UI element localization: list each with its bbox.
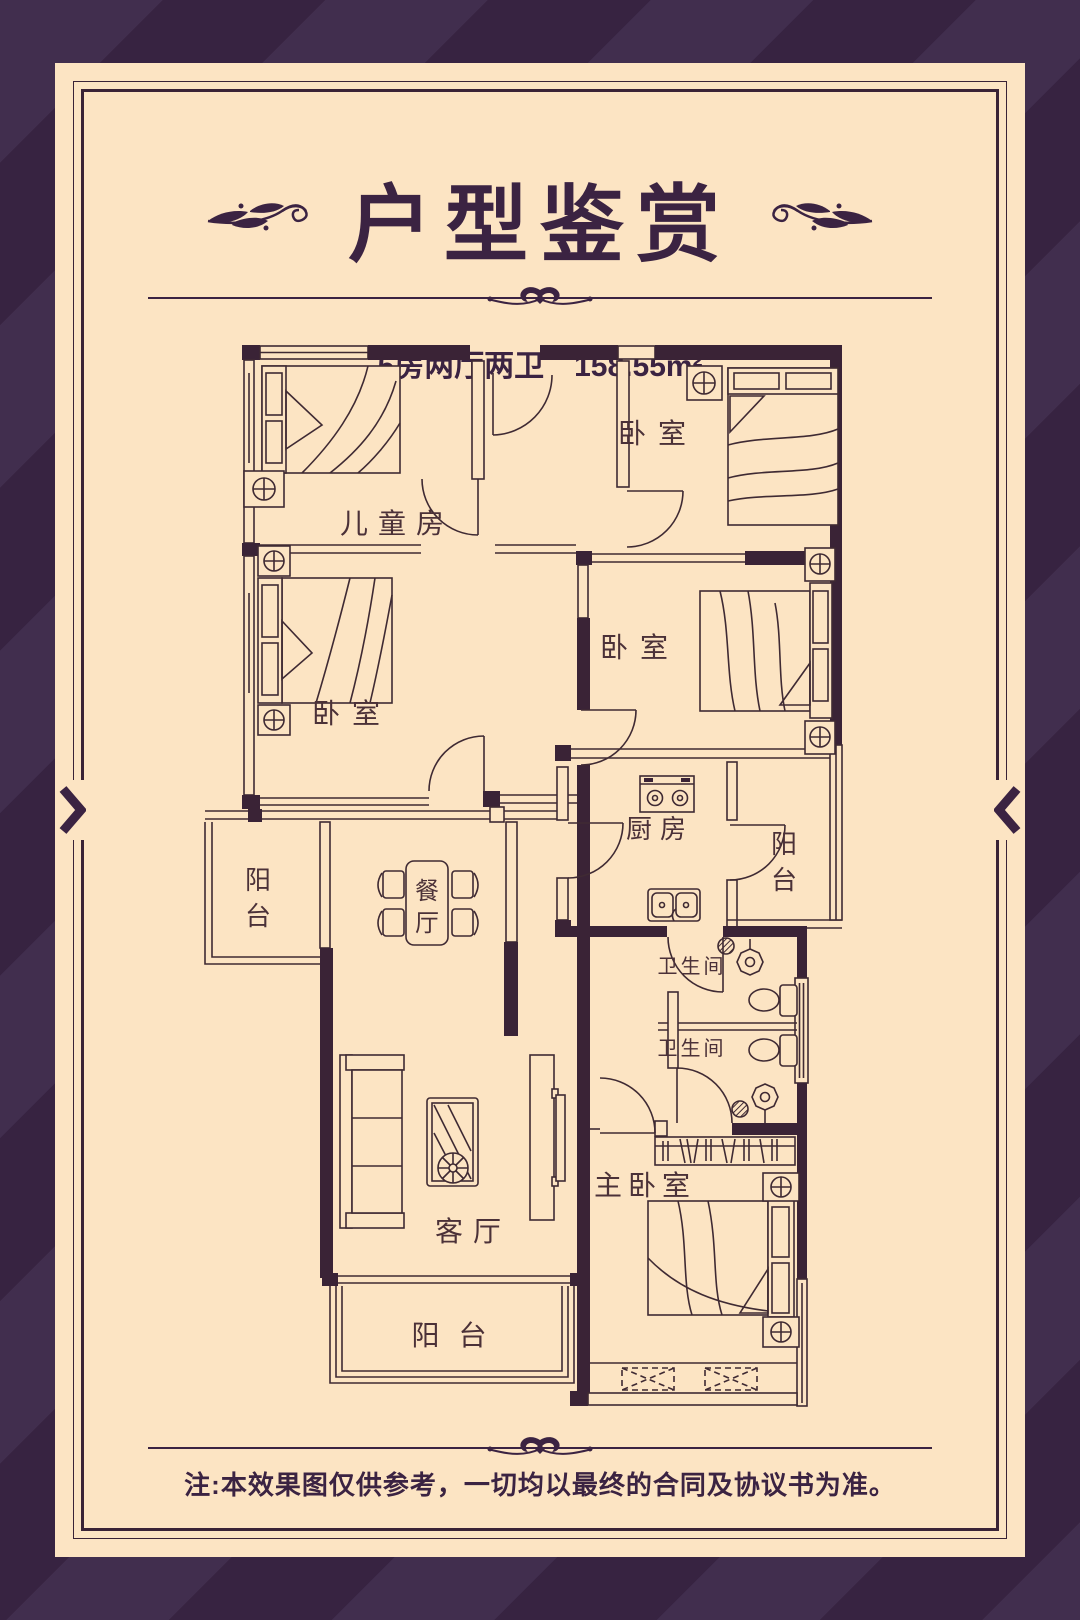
bathroom-2-toilet — [749, 1035, 797, 1066]
living-room-label: 客厅 — [435, 1216, 511, 1248]
svg-text:阳: 阳 — [245, 866, 271, 895]
living-coffee-table — [427, 1098, 478, 1186]
svg-text:台: 台 — [771, 866, 797, 895]
balcony-bottom-label: 阳 台 — [411, 1320, 492, 1352]
entry-door — [493, 373, 552, 435]
kitchen-sink — [648, 889, 700, 921]
flourish-left-icon — [204, 195, 314, 241]
living-tv-cabinet — [530, 1055, 565, 1220]
kitchen-stove — [640, 776, 694, 812]
bedroom-mid-left-label: 卧室 — [312, 698, 392, 730]
kitchen-label: 厨房 — [626, 815, 694, 844]
poster-background: 户型鉴赏 5房两厅两卫 158.55m² — [0, 0, 1080, 1620]
kitchen-door — [568, 823, 623, 878]
bathroom-2-door — [677, 1068, 732, 1123]
bathroom-1-shower — [737, 939, 763, 975]
bedroom-mid-left-nightstand-top — [258, 546, 290, 576]
master-nightstand-bottom — [763, 1317, 799, 1347]
bathroom-1-toilet — [749, 985, 797, 1016]
master-bedroom-label: 主卧室 — [594, 1170, 696, 1202]
living-sofa — [340, 1055, 404, 1228]
children-room-nightstand — [244, 471, 284, 507]
master-cabinet-boxes — [622, 1368, 757, 1390]
floor-plan: 儿童房 卧室 卧室 卧室 厨房 卫生间 卫生间 客厅 主卧室 餐 厅 阳 台 阳… — [200, 333, 850, 1408]
balcony-kitchen-label: 阳 台 — [771, 830, 797, 895]
divider-top — [148, 297, 932, 299]
svg-text:台: 台 — [245, 902, 271, 931]
chevron-left-icon[interactable] — [991, 780, 1025, 840]
divider-ornament-icon — [470, 284, 610, 314]
page-title: 户型鉴赏 — [348, 158, 732, 279]
bedroom-mid-left-nightstand-bottom — [258, 705, 290, 735]
title-row: 户型鉴赏 — [55, 163, 1025, 273]
svg-text:阳: 阳 — [771, 830, 797, 859]
svg-text:餐: 餐 — [415, 878, 439, 905]
disclaimer-note: 注:本效果图仅供参考，一切均以最终的合同及协议书为准。 — [55, 1465, 1025, 1502]
balcony-left-label: 阳 台 — [245, 866, 271, 931]
poster-card: 户型鉴赏 5房两厅两卫 158.55m² — [55, 63, 1025, 1557]
svg-text:厅: 厅 — [415, 911, 439, 937]
bedroom-mid-right-door — [581, 710, 636, 765]
bathroom-2-drain — [732, 1101, 748, 1117]
bedroom-mid-right-nightstand-top — [805, 548, 835, 581]
master-nightstand-top — [763, 1173, 799, 1201]
bedroom-top-right-nightstand — [687, 366, 722, 400]
divider-bottom — [148, 1447, 932, 1449]
bedroom-top-right-label: 卧室 — [618, 418, 698, 450]
chevron-right-icon[interactable] — [55, 780, 89, 840]
flourish-right-icon — [766, 195, 876, 241]
bedroom-mid-right-bed — [700, 583, 832, 718]
bedroom-mid-right-nightstand-bottom — [805, 721, 835, 754]
bedroom-top-right-door — [627, 491, 683, 547]
children-room-bed — [262, 366, 400, 473]
bathroom-2-shower — [752, 1084, 778, 1123]
divider-ornament-icon — [470, 1434, 610, 1464]
master-bedroom-door — [600, 1078, 655, 1133]
bathroom-1-label: 卫生间 — [658, 955, 727, 978]
bathroom-1-drain — [718, 938, 734, 954]
bedroom-top-right-bed — [728, 368, 838, 525]
master-wardrobe — [655, 1137, 795, 1165]
master-bed — [648, 1199, 794, 1317]
bedroom-mid-left-door — [429, 736, 484, 791]
bedroom-mid-left-bed — [258, 578, 392, 703]
bedroom-mid-right-label: 卧室 — [600, 632, 680, 664]
children-room-label: 儿童房 — [340, 508, 454, 540]
bathroom-2-label: 卫生间 — [658, 1037, 727, 1060]
